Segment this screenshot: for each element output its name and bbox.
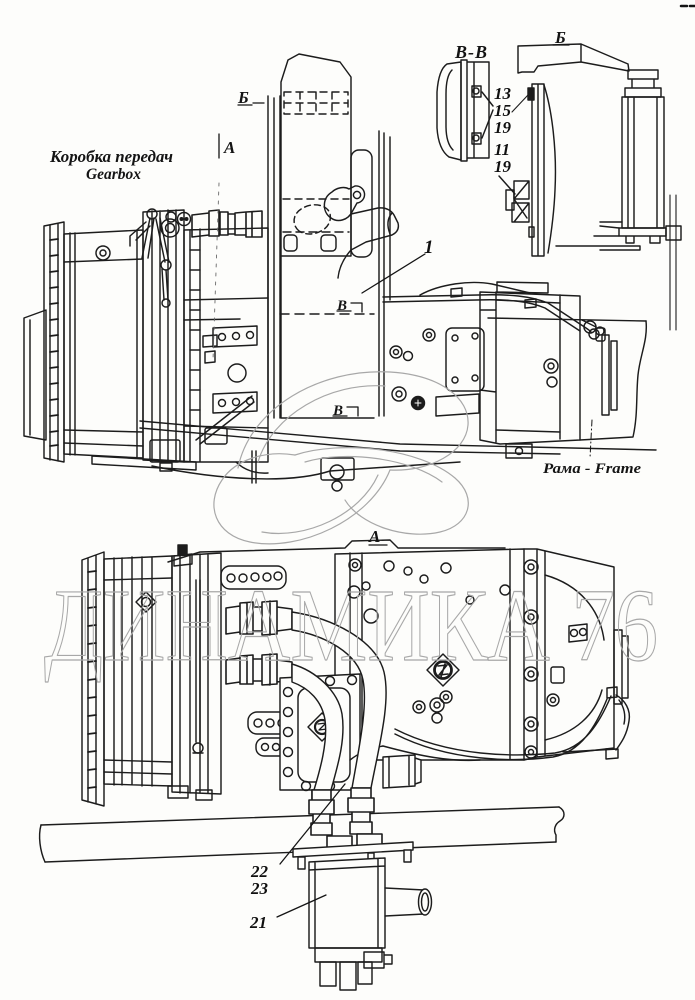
svg-text:Б: Б: [237, 88, 249, 107]
svg-text:Рама - Frame: Рама - Frame: [543, 461, 641, 477]
svg-text:ДИНАМИКА 76: ДИНАМИКА 76: [44, 568, 658, 683]
svg-text:В: В: [332, 403, 343, 419]
svg-text:А: А: [368, 527, 380, 546]
svg-text:Б: Б: [554, 28, 566, 47]
svg-text:А: А: [223, 138, 235, 157]
svg-text:19: 19: [494, 118, 512, 137]
svg-text:В-В: В-В: [454, 42, 488, 62]
svg-text:В: В: [336, 298, 347, 314]
svg-text:23: 23: [250, 879, 269, 898]
svg-text:Коробка передач: Коробка передач: [49, 147, 173, 166]
svg-text:Gearbox: Gearbox: [86, 166, 141, 183]
svg-text:1: 1: [424, 237, 434, 258]
svg-text:21: 21: [249, 913, 267, 932]
svg-text:19: 19: [494, 157, 512, 176]
